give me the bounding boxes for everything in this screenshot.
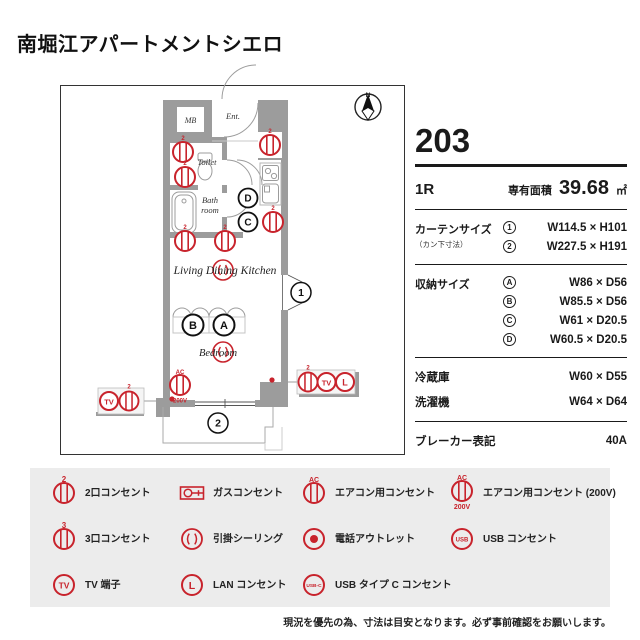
svg-text:TV: TV (322, 379, 332, 388)
tv-terminal-icon: TV (50, 566, 78, 600)
legend-label: 電話アウトレット (335, 530, 415, 545)
curtain-row: 1 W114.5 × H101 (503, 221, 627, 234)
storage-mark-c: C (503, 314, 516, 327)
mark-window-2: 2 (215, 418, 221, 430)
legend-item-outlet-2: 2 2口コンセント (50, 474, 178, 508)
phone-outlet-dot (269, 377, 274, 382)
legend-label: TV 端子 (85, 576, 121, 591)
storage-value-c: W61 × D20.5 (560, 315, 627, 327)
storage-size-section: 収納サイズ A W86 × D56 B W85.5 × D56 C W61 × … (415, 265, 627, 358)
svg-text:USB-C: USB-C (306, 583, 322, 589)
legend-item-outlet-3: 3 3口コンセント (50, 520, 178, 554)
legend-panel: 2 2口コンセント ガスコンセント AC エアコン用コンセント AC (30, 468, 610, 607)
storage-value-a: W86 × D56 (569, 277, 627, 289)
outlet-2-icon: 2 (50, 474, 78, 508)
fridge-label: 冷蔵庫 (415, 369, 450, 385)
mark-a: A (220, 320, 228, 332)
storage-row: A W86 × D56 (503, 276, 627, 289)
area-unit: ㎡ (616, 182, 627, 198)
mark-b: B (189, 320, 197, 332)
legend-label: 3口コンセント (85, 530, 151, 545)
label-bath-1: Bath (202, 195, 218, 205)
phone-outlet-dot (169, 396, 174, 401)
legend-item-gas: ガスコンセント (178, 474, 300, 508)
disclaimer-text: 現況を優先の為、寸法は目安となります。必ず事前確認をお願いします。 (283, 614, 611, 629)
legend-item-tv: TV TV 端子 (50, 566, 178, 600)
usb-c-outlet-icon: USB-C (300, 566, 328, 600)
washer-value: W64 × D64 (569, 396, 627, 408)
svg-text:L: L (342, 378, 348, 388)
area-label: 専有面積 (508, 182, 552, 198)
legend-label: LAN コンセント (213, 576, 286, 591)
breaker-value: 40A (606, 435, 627, 447)
label-toilet: Toilet (197, 157, 217, 167)
svg-text:USB: USB (456, 538, 469, 544)
curtain-value-2: W227.5 × H191 (547, 241, 627, 253)
label-ldk: Living Dining Kitchen (173, 265, 277, 277)
label-mb: MB (184, 116, 197, 125)
legend-item-ac-200v: AC 200V エアコン用コンセント (200V) (448, 472, 608, 510)
legend-label: USB タイプ C コンセント (335, 576, 452, 591)
curtain-row: 2 W227.5 × H191 (503, 240, 627, 253)
lan-outlet-icon: L (178, 566, 206, 600)
svg-text:200V: 200V (173, 399, 187, 405)
curtain-mark-2: 2 (503, 240, 516, 253)
legend-label: エアコン用コンセント (335, 484, 435, 499)
storage-mark-b: B (503, 295, 516, 308)
mark-d: D (244, 194, 251, 205)
washer-row: 洗濯機 W64 × D64 (415, 394, 627, 410)
breaker-label: ブレーカー表記 (415, 433, 496, 449)
phone-outlet-icon (300, 520, 328, 554)
appliance-section: 冷蔵庫 W60 × D55 洗濯機 W64 × D64 (415, 358, 627, 422)
legend-item-ceiling: 引掛シーリング (178, 520, 300, 554)
page-title: 南堀江アパートメントシエロ (17, 28, 283, 57)
mark-c: C (244, 218, 251, 229)
storage-row: B W85.5 × D56 (503, 295, 627, 308)
fridge-row: 冷蔵庫 W60 × D55 (415, 369, 627, 385)
storage-row: C W61 × D20.5 (503, 314, 627, 327)
curtain-value-1: W114.5 × H101 (547, 222, 627, 234)
legend-label: 2口コンセント (85, 484, 151, 499)
storage-mark-d: D (503, 333, 516, 346)
layout-type: 1R (415, 181, 434, 198)
breaker-section: ブレーカー表記 40A (415, 422, 627, 460)
mark-window-1: 1 (298, 287, 304, 299)
label-entrance: Ent. (225, 111, 240, 121)
curtain-size-sublabel: （カン下寸法） (415, 239, 503, 250)
curtain-mark-1: 1 (503, 221, 516, 234)
legend-label: エアコン用コンセント (200V) (483, 484, 616, 499)
legend-label: 引掛シーリング (213, 530, 283, 545)
floor-plan: N (60, 85, 405, 455)
svg-text:200V: 200V (454, 504, 471, 510)
storage-value-d: W60.5 × D20.5 (550, 334, 627, 346)
svg-text:TV: TV (104, 398, 114, 407)
curtain-size-label: カーテンサイズ (415, 221, 503, 237)
storage-value-b: W85.5 × D56 (560, 296, 627, 308)
ac-outlet-icon: AC (300, 474, 328, 508)
legend-item-usb: USB USB コンセント (448, 520, 608, 554)
legend-item-ac: AC エアコン用コンセント (300, 474, 448, 508)
outlet-3-icon: 3 (50, 520, 78, 554)
ceiling-hook-icon (178, 520, 206, 554)
breaker-row: ブレーカー表記 40A (415, 433, 627, 449)
storage-size-label: 収納サイズ (415, 276, 503, 292)
usb-outlet-icon: USB (448, 520, 476, 554)
label-bedroom: Bedroom (199, 348, 238, 359)
unit-info-panel: 203 1R 専有面積 39.68 ㎡ カーテンサイズ （カン下寸法） 1 W1… (415, 124, 627, 460)
label-bath-2: room (201, 205, 219, 215)
legend-item-phone: 電話アウトレット (300, 520, 448, 554)
fridge-value: W60 × D55 (569, 371, 627, 383)
storage-row: D W60.5 × D20.5 (503, 333, 627, 346)
svg-text:L: L (189, 580, 196, 592)
legend-label: USB コンセント (483, 530, 557, 545)
area-value: 39.68 (559, 177, 609, 200)
legend-item-lan: L LAN コンセント (178, 566, 300, 600)
legend-item-usb-c: USB-C USB タイプ C コンセント (300, 566, 448, 600)
legend-label: ガスコンセント (213, 484, 283, 499)
layout-area-row: 1R 専有面積 39.68 ㎡ (415, 167, 627, 210)
curtain-size-section: カーテンサイズ （カン下寸法） 1 W114.5 × H101 2 W227.5… (415, 210, 627, 265)
svg-text:TV: TV (59, 581, 70, 591)
washer-label: 洗濯機 (415, 394, 450, 410)
unit-number: 203 (415, 124, 627, 167)
gas-outlet-icon (178, 474, 206, 508)
storage-mark-a: A (503, 276, 516, 289)
ac-200v-outlet-icon: AC 200V (448, 472, 476, 510)
